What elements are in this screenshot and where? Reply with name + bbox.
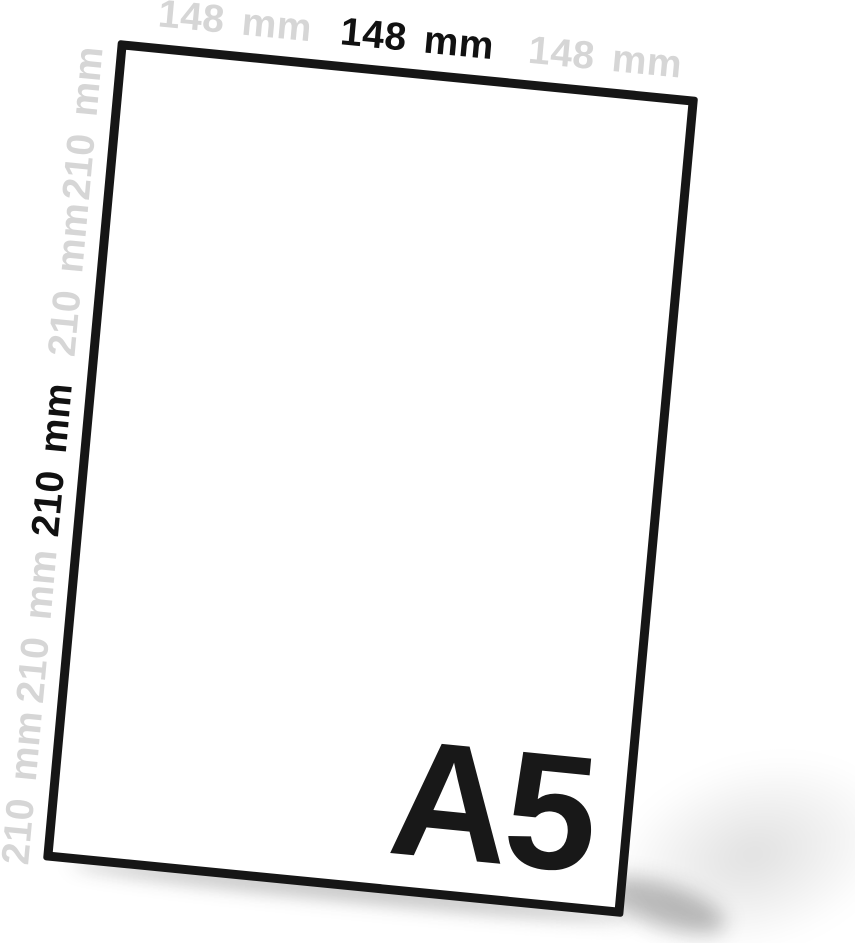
width-label-top-right: 148 mm	[527, 31, 684, 85]
height-label-left-4: 210 mm	[11, 547, 64, 705]
width-label-top-left: 148 mm	[157, 0, 314, 48]
height-label-left-5: 210 mm	[0, 709, 49, 867]
height-label-left-3: 210 mm	[26, 381, 79, 539]
height-label-left-2: 210 mm	[43, 201, 96, 359]
sheet-space: A5 148 mm 148 mm 148 mm 210 mm 210 mm 21…	[43, 40, 698, 917]
a5-size-diagram: A5 148 mm 148 mm 148 mm 210 mm 210 mm 21…	[0, 0, 855, 943]
paper-size-label: A5	[384, 714, 601, 898]
paper-sheet: A5	[43, 40, 698, 917]
width-label-top-center: 148 mm	[339, 12, 496, 66]
height-label-left-1: 210 mm	[57, 44, 110, 202]
